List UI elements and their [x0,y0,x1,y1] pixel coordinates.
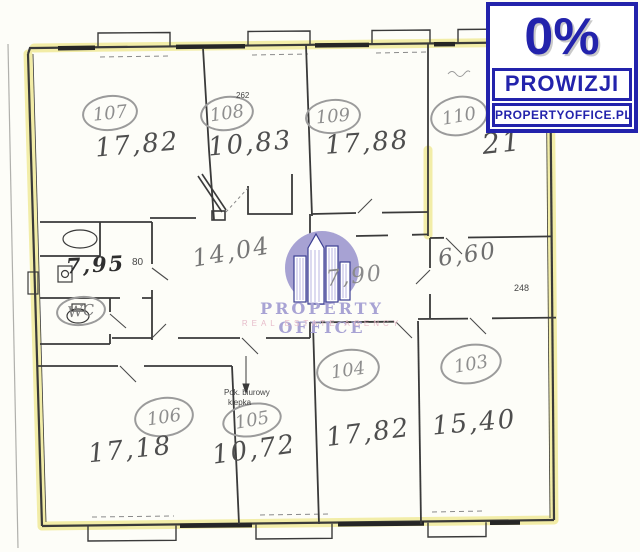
dim-note-262: 262 [236,91,249,100]
room-105-note-2: klepka [228,398,251,407]
room-number-108: 108 [209,101,246,127]
dim-note-248: 248 [514,283,529,293]
badge-percent: 0% [490,6,634,68]
room-number-107: 107 [92,101,128,125]
pencil-scribble [448,71,470,77]
room-number-103: 103 [452,351,489,378]
scan-edge-line [8,44,18,548]
room-number-109: 109 [315,105,351,129]
room-number-105: 105 [233,407,270,434]
entry-door-swing [226,188,248,212]
badge-commission: PROWIZJI [492,68,632,101]
room-105-note-1: Pok. biurowy [224,388,270,397]
logo-tagline-text: REAL ESTATE AGENCY [222,319,422,328]
dim-note-80: 80 [132,257,143,268]
room-number-104: 104 [330,357,367,383]
floor-plan-page: { "badge": { "percent": "0%", "commissio… [0,0,640,552]
promo-badge: 0% PROWIZJI PROPERTYOFFICE.PL [486,2,638,133]
room-number-110: 110 [440,103,477,130]
area-109: 17,88 [324,125,410,161]
wc-label: WC [67,301,96,322]
logo-brand-text: PROPERTY OFFICE [222,299,422,337]
area-bathroom: 7,95 [65,250,125,278]
room-number-106: 106 [146,404,183,430]
badge-website: PROPERTYOFFICE.PL [492,103,632,127]
